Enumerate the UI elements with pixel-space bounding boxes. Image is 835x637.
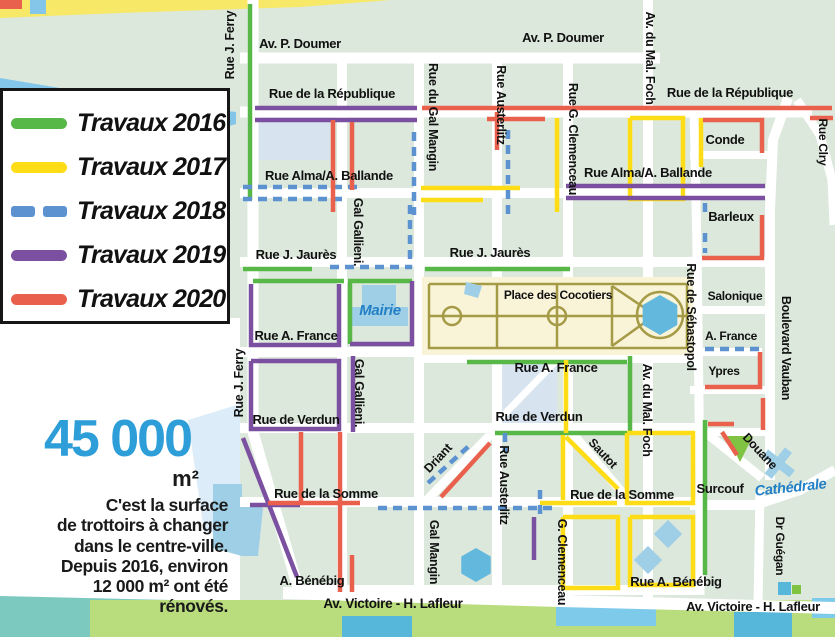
map-terrain-shape — [342, 616, 412, 637]
street-label: Rue de la République — [667, 85, 793, 100]
street-label: Rue J. Ferry — [223, 10, 237, 79]
stat-description: C'est la surfacede trottoirs à changerda… — [0, 495, 233, 617]
street-label: Rue J. Ferry — [232, 348, 246, 417]
stat-description-line: C'est la surface — [0, 495, 228, 515]
map-terrain-shape — [778, 582, 791, 595]
street-label: Rue Clry — [816, 119, 830, 167]
line-swatch — [11, 294, 67, 305]
street-label: Rue A. France — [514, 360, 597, 375]
map-terrain-shape — [0, 0, 22, 9]
street-label: Rue A. France — [254, 328, 337, 343]
street-label: Gal Gallieni. — [352, 359, 366, 427]
street-label: G. Clemenceau — [555, 519, 569, 605]
street-label: Av. P. Doumer — [522, 30, 604, 45]
street-label: Rue G. Clemenceau — [566, 83, 580, 195]
legend-item-label: Travaux 2020 — [77, 285, 225, 314]
map-terrain-shape — [792, 585, 801, 594]
legend-box: Travaux 2016Travaux 2017Travaux 2018Trav… — [0, 88, 230, 324]
street-label: Barleux — [708, 209, 755, 224]
street-label: Rue de Sébastopol — [684, 263, 698, 370]
street-label: Rue A. Bénébig — [630, 574, 722, 589]
street-label: Boulevard Vauban — [779, 296, 793, 400]
legend-item-label: Travaux 2016 — [77, 109, 225, 138]
street-label: Surcouf — [696, 481, 744, 496]
street-label: Rue Alma/A. Ballande — [265, 168, 393, 183]
street-label: Place des Cocotiers — [504, 288, 613, 302]
line-swatch — [11, 250, 67, 261]
stat-description-line: Depuis 2016, environ — [0, 556, 228, 576]
stats-block: 45 000 m² C'est la surfacede trottoirs à… — [0, 413, 233, 617]
street-label: Rue Austerlitz — [497, 445, 511, 524]
street-label: Rue de Verdun — [495, 409, 582, 424]
street-label: Rue de la République — [269, 86, 395, 101]
street-label: Conde — [706, 132, 745, 147]
legend-item-label: Travaux 2018 — [77, 197, 225, 226]
street-label: Rue de la Somme — [274, 486, 378, 501]
map-terrain-shape — [734, 612, 792, 637]
line-swatch — [11, 162, 67, 173]
legend-item: Travaux 2020 — [3, 277, 227, 321]
street-label: Rue de Verdun — [252, 412, 339, 427]
street-label: Av. Victoire - H. Lafleur — [686, 599, 820, 614]
stat-value: 45 000 — [0, 413, 233, 465]
map-terrain-shape — [30, 0, 46, 14]
street-label: Gal Gallieni. — [351, 198, 365, 266]
street-label: Av. du Mal. Foch — [643, 11, 657, 104]
legend-item: Travaux 2018 — [3, 189, 227, 233]
map-terrain-shape — [256, 116, 330, 160]
street-label: A. Bénébig — [280, 573, 345, 588]
street-label: Rue Alma/A. Ballande — [584, 165, 712, 180]
street-label: Av. P. Doumer — [259, 36, 341, 51]
legend-item: Travaux 2019 — [3, 233, 227, 277]
street-label: A. France — [705, 329, 758, 343]
legend-item-label: Travaux 2017 — [77, 153, 225, 182]
stat-description-line: dans le centre-ville. — [0, 536, 228, 556]
street-label: Av. du Mal. Foch — [640, 363, 654, 456]
stat-description-line: rénovés. — [0, 596, 228, 616]
stat-description-line: 12 000 m² ont été — [0, 576, 228, 596]
street-label: Salonique — [708, 289, 763, 303]
legend-item-label: Travaux 2019 — [77, 241, 225, 270]
legend-items: Travaux 2016Travaux 2017Travaux 2018Trav… — [3, 101, 227, 321]
street-label: Gal Mangin — [427, 520, 441, 584]
street-label: Rue du Gal Mangin — [426, 63, 440, 171]
street-label: Rue J. Jaurès — [256, 247, 337, 262]
street-label: Mairie — [359, 302, 401, 319]
street-label: Rue de la Somme — [570, 487, 674, 502]
line-swatch — [11, 118, 67, 129]
stat-unit: m² — [0, 466, 233, 492]
infographic-map: Av. P. DoumerAv. P. DoumerRue de la Répu… — [0, 0, 835, 637]
legend-item: Travaux 2017 — [3, 145, 227, 189]
street-label: Rue J. Jaurès — [450, 245, 531, 260]
street-label: Av. Victoire - H. Lafleur — [323, 596, 463, 611]
dashed-line-swatch — [11, 206, 67, 217]
street-label: Rue Austerlitz — [494, 65, 508, 144]
legend-item: Travaux 2016 — [3, 101, 227, 145]
stat-description-line: de trottoirs à changer — [0, 515, 228, 535]
street-label: Ypres — [708, 364, 740, 378]
street-label: Dr Guégan — [773, 517, 787, 576]
